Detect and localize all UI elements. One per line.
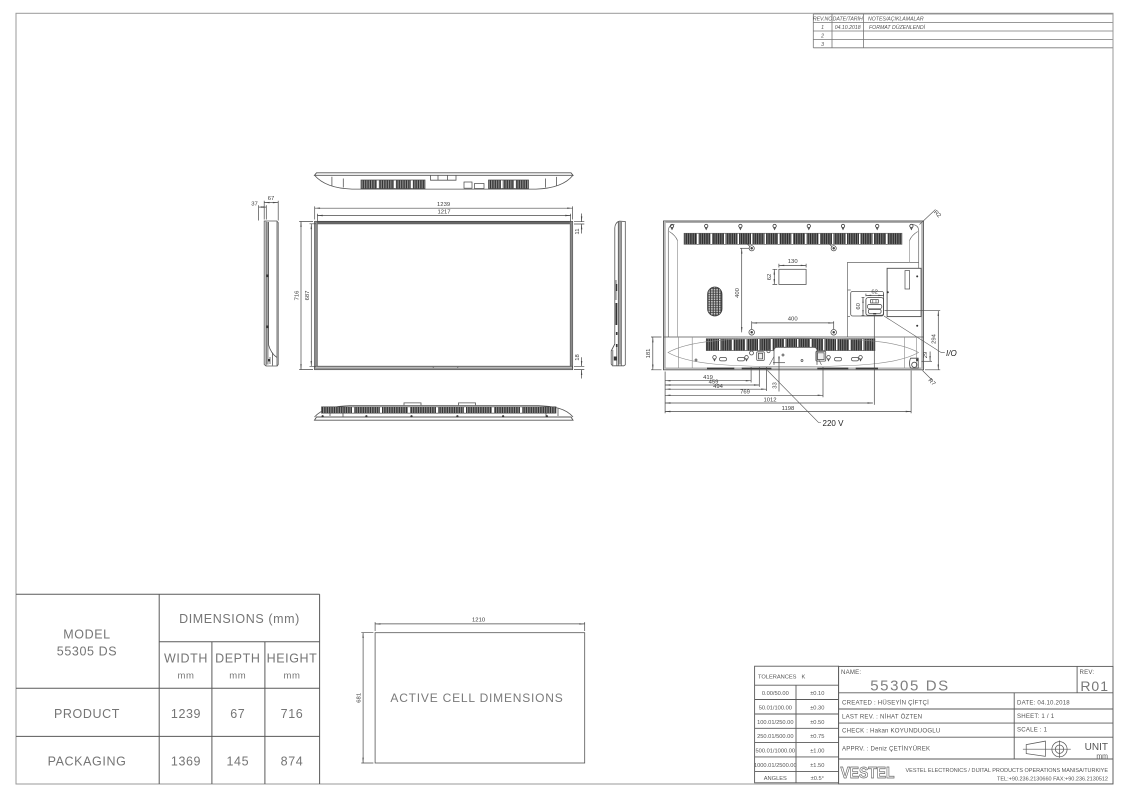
svg-text:REV:: REV:	[1080, 669, 1095, 676]
svg-text:11: 11	[575, 228, 581, 234]
svg-text:mm: mm	[1096, 754, 1108, 761]
svg-text:2: 2	[820, 34, 824, 40]
svg-text:18: 18	[575, 354, 581, 361]
svg-text:1012: 1012	[763, 397, 776, 403]
svg-text:±0.30: ±0.30	[810, 705, 824, 711]
svg-text:716: 716	[295, 290, 301, 301]
svg-text:SHEET: 1 / 1: SHEET: 1 / 1	[1017, 713, 1055, 720]
svg-text:1210: 1210	[472, 618, 486, 624]
svg-text:FORMAT DÜZENLENDİ: FORMAT DÜZENLENDİ	[869, 24, 926, 31]
svg-text:HEIGHT: HEIGHT	[267, 652, 318, 666]
svg-text:LAST REV. : NİHAT ÖZTEN: LAST REV. : NİHAT ÖZTEN	[842, 714, 922, 721]
svg-text:55305 DS: 55305 DS	[57, 645, 117, 659]
svg-text:WIDTH: WIDTH	[164, 652, 208, 666]
svg-text:REV.NO: REV.NO	[813, 17, 833, 23]
svg-text:mm: mm	[283, 671, 300, 682]
svg-text:±0.5°: ±0.5°	[811, 776, 824, 782]
svg-text:UNIT: UNIT	[1085, 742, 1108, 753]
svg-text:67: 67	[268, 196, 275, 202]
svg-text:±1.00: ±1.00	[810, 748, 824, 754]
svg-text:67: 67	[230, 707, 245, 721]
svg-text:DATE: 04.10.2018: DATE: 04.10.2018	[1017, 699, 1070, 706]
svg-text:ANGLES: ANGLES	[764, 776, 787, 782]
svg-text:NAME:: NAME:	[841, 669, 861, 676]
svg-text:MODEL: MODEL	[63, 628, 110, 642]
svg-text:mm: mm	[177, 671, 194, 682]
svg-text:60: 60	[856, 302, 862, 309]
svg-text:PACKAGING: PACKAGING	[48, 755, 127, 769]
svg-text:400: 400	[735, 287, 741, 298]
svg-text:681: 681	[356, 693, 362, 703]
svg-text:1198: 1198	[782, 406, 795, 412]
svg-text:55305 DS: 55305 DS	[870, 678, 950, 695]
svg-text:145: 145	[226, 755, 249, 769]
svg-text:SCALE : 1: SCALE : 1	[1017, 727, 1048, 734]
svg-text:R7: R7	[927, 378, 937, 388]
svg-text:0.00/50.00: 0.00/50.00	[762, 691, 789, 697]
svg-text:769: 769	[740, 390, 750, 396]
svg-text:50.01/100.00: 50.01/100.00	[759, 705, 792, 711]
svg-text:R2: R2	[932, 210, 942, 220]
svg-text:mm: mm	[229, 671, 246, 682]
svg-text:NOTES/AÇIKLAMALAR: NOTES/AÇIKLAMALAR	[868, 17, 924, 23]
svg-text:K: K	[802, 675, 806, 681]
svg-text:33: 33	[773, 382, 779, 389]
svg-text:62: 62	[871, 289, 878, 295]
svg-text:CHECK : Hakan KOYUNDUOGLU: CHECK : Hakan KOYUNDUOGLU	[842, 728, 940, 735]
svg-text:±0.10: ±0.10	[810, 691, 824, 697]
svg-text:1369: 1369	[171, 755, 201, 769]
svg-text:100.01/250.00: 100.01/250.00	[757, 720, 793, 726]
svg-text:PRODUCT: PRODUCT	[54, 707, 120, 721]
svg-text:62: 62	[767, 274, 773, 281]
svg-text:R01: R01	[1080, 678, 1109, 694]
svg-text:VESTEL ELECTRONICS / DIJITAL P: VESTEL ELECTRONICS / DIJITAL PRODUCTS OP…	[906, 768, 1109, 774]
svg-text:3: 3	[821, 42, 824, 48]
svg-text:DIMENSIONS (mm): DIMENSIONS (mm)	[179, 612, 300, 626]
svg-text:220 V: 220 V	[823, 419, 845, 428]
svg-text:DEPTH: DEPTH	[215, 652, 260, 666]
svg-text:687: 687	[305, 291, 311, 301]
svg-text:250.01/500.00: 250.01/500.00	[757, 734, 793, 740]
svg-text:ACTIVE CELL DIMENSIONS: ACTIVE CELL DIMENSIONS	[390, 691, 563, 705]
svg-text:VESTEL: VESTEL	[841, 765, 895, 782]
svg-text:04.10.2018: 04.10.2018	[835, 25, 861, 31]
svg-text:CREATED : HÜSEYİN ÇİFTÇİ: CREATED : HÜSEYİN ÇİFTÇİ	[842, 699, 929, 706]
svg-text:DATE/TARİH: DATE/TARİH	[833, 16, 863, 23]
svg-text:29: 29	[923, 352, 929, 359]
svg-text:1239: 1239	[437, 202, 450, 208]
svg-text:500.01/1000.00: 500.01/1000.00	[756, 748, 796, 754]
svg-text:181: 181	[646, 349, 652, 359]
svg-text:874: 874	[281, 755, 304, 769]
svg-text:±1.50: ±1.50	[810, 763, 824, 769]
svg-text:1000.01/2500.00: 1000.01/2500.00	[754, 763, 797, 769]
svg-text:494: 494	[713, 384, 724, 390]
svg-text:±0.50: ±0.50	[810, 720, 824, 726]
svg-text:APPRV. : Deniz ÇETİNYÜREK: APPRV. : Deniz ÇETİNYÜREK	[842, 746, 930, 753]
svg-text:400: 400	[788, 317, 799, 323]
svg-text:TEL:+90.236.2130660 FAX:+90.23: TEL:+90.236.2130660 FAX:+90.236.2130512	[997, 777, 1108, 783]
svg-text:130: 130	[788, 259, 799, 265]
svg-text:1: 1	[821, 25, 824, 31]
svg-text:1217: 1217	[437, 209, 450, 215]
svg-text:TOLERANCES: TOLERANCES	[758, 675, 797, 681]
svg-text:37: 37	[251, 202, 258, 208]
svg-text:1239: 1239	[171, 707, 201, 721]
svg-text:I/O: I/O	[946, 349, 957, 358]
svg-text:716: 716	[281, 707, 304, 721]
svg-text:±0.75: ±0.75	[810, 734, 824, 740]
svg-text:294: 294	[931, 333, 937, 344]
